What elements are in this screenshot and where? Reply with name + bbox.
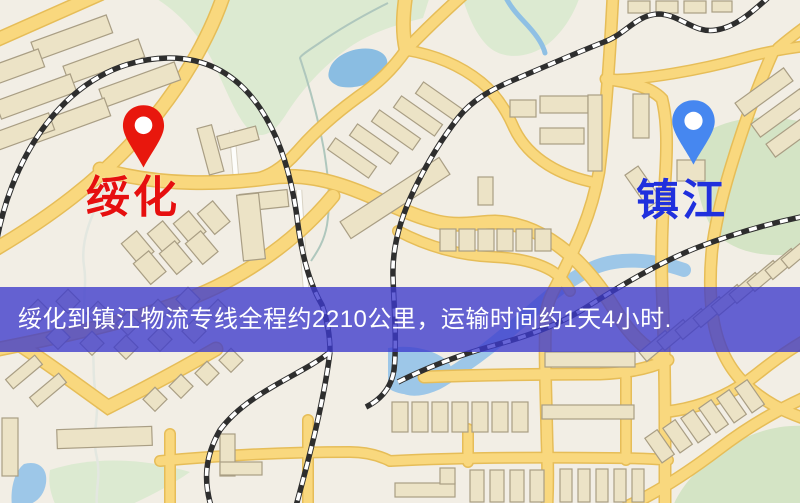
destination-pin[interactable] (669, 99, 718, 167)
route-info-banner: 绥化到镇江物流专线全程约2210公里，运输时间约1天4小时. (0, 287, 800, 352)
origin-pin[interactable] (120, 103, 167, 171)
map-canvas[interactable] (0, 0, 800, 503)
origin-city-label: 绥化 (86, 176, 180, 220)
map-pin-icon (120, 103, 167, 171)
route-info-text: 绥化到镇江物流专线全程约2210公里，运输时间约1天4小时. (18, 287, 672, 352)
map-screenshot: 绥化 镇江 绥化到镇江物流专线全程约2210公里，运输时间约1天4小时. (0, 0, 800, 503)
map-pin-icon (669, 99, 718, 167)
destination-city-label: 镇江 (636, 180, 728, 223)
